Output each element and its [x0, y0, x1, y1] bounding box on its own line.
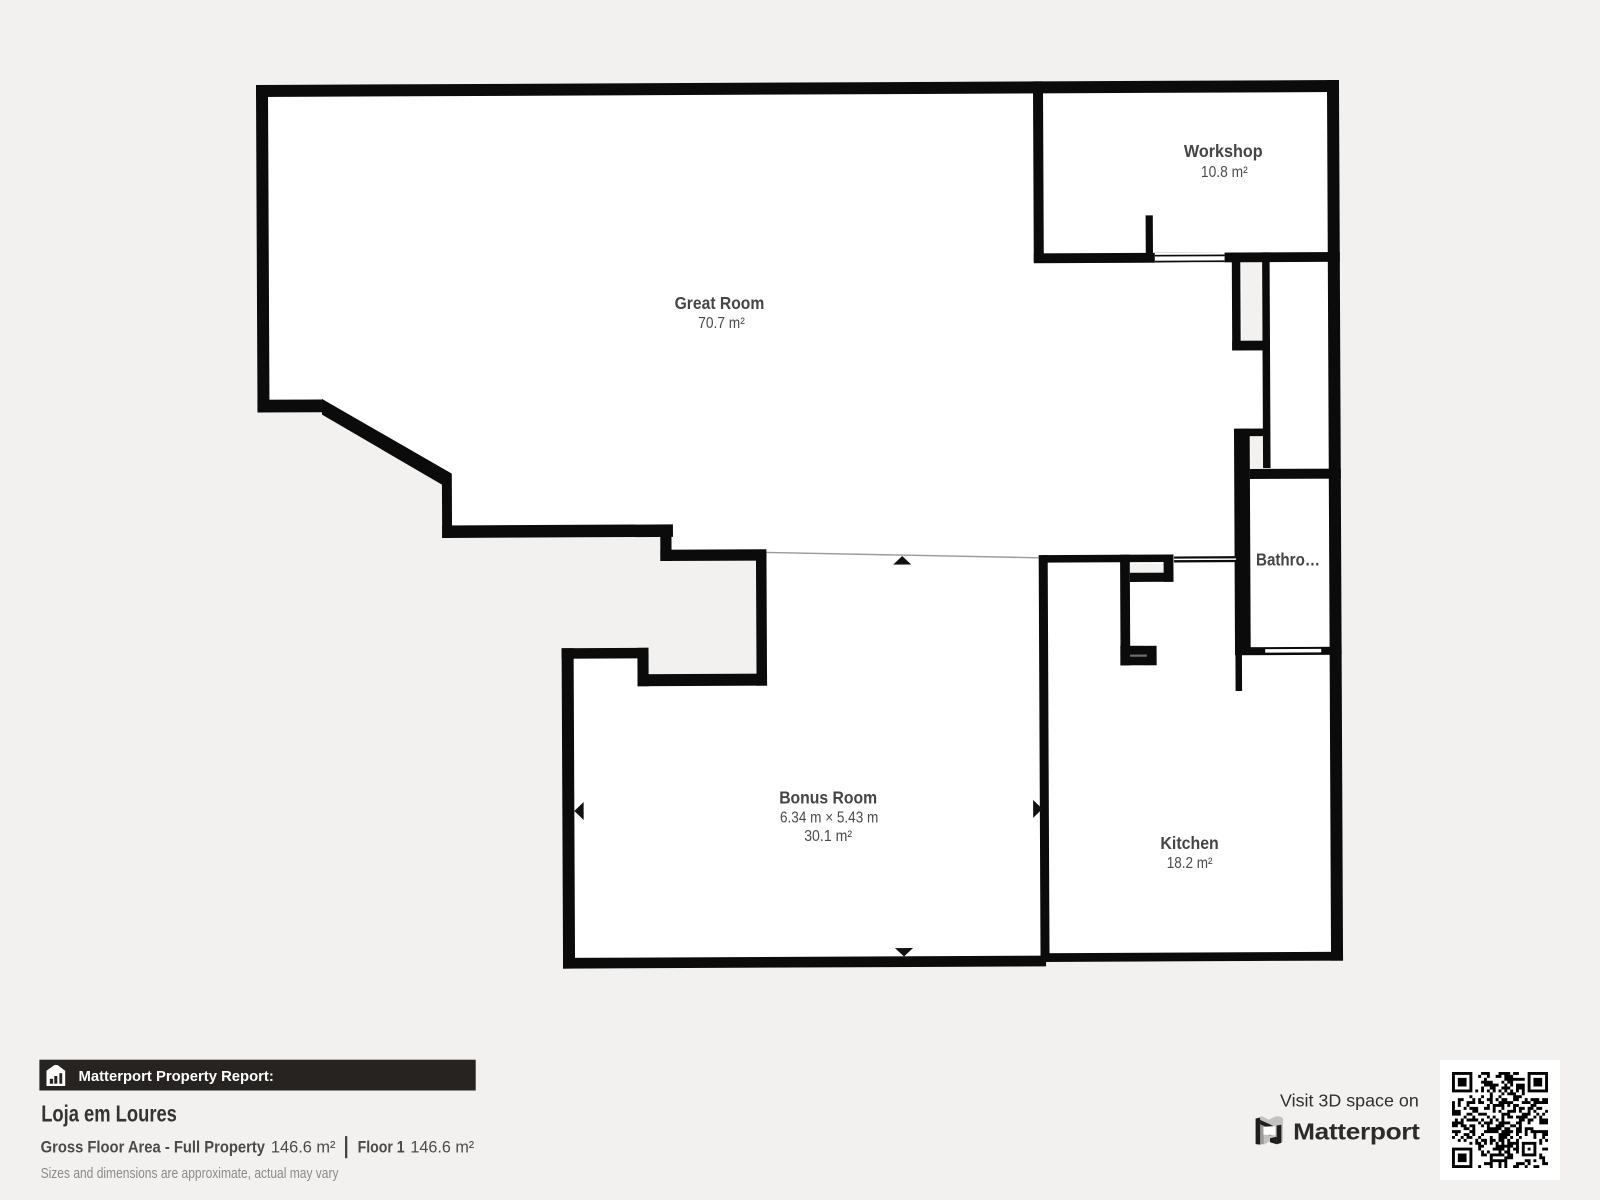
svg-text:6.34 m × 5.43 m: 6.34 m × 5.43 m: [780, 809, 878, 826]
svg-text:Loja em Loures: Loja em Loures: [41, 1100, 177, 1126]
svg-text:Bonus Room: Bonus Room: [779, 788, 877, 808]
svg-text:30.1 m²: 30.1 m²: [804, 828, 852, 845]
svg-text:Bathro…: Bathro…: [1256, 550, 1320, 570]
svg-text:146.6 m²: 146.6 m²: [271, 1138, 336, 1157]
svg-text:Workshop: Workshop: [1184, 141, 1263, 161]
svg-text:146.6 m²: 146.6 m²: [410, 1138, 474, 1157]
svg-text:Great Room: Great Room: [675, 293, 765, 313]
svg-text:Kitchen: Kitchen: [1160, 833, 1218, 853]
svg-text:Floor 1: Floor 1: [358, 1138, 405, 1157]
svg-text:70.7 m²: 70.7 m²: [698, 315, 745, 332]
svg-text:Matterport: Matterport: [1293, 1118, 1420, 1144]
svg-text:Visit 3D space on: Visit 3D space on: [1280, 1090, 1419, 1110]
svg-text:10.8 m²: 10.8 m²: [1201, 164, 1248, 181]
svg-text:Matterport Property Report:: Matterport Property Report:: [79, 1068, 274, 1085]
svg-text:18.2 m²: 18.2 m²: [1167, 855, 1213, 872]
svg-text:Sizes and dimensions are appro: Sizes and dimensions are approximate, ac…: [41, 1165, 339, 1182]
svg-text:Gross Floor Area - Full Proper: Gross Floor Area - Full Property: [41, 1138, 266, 1157]
